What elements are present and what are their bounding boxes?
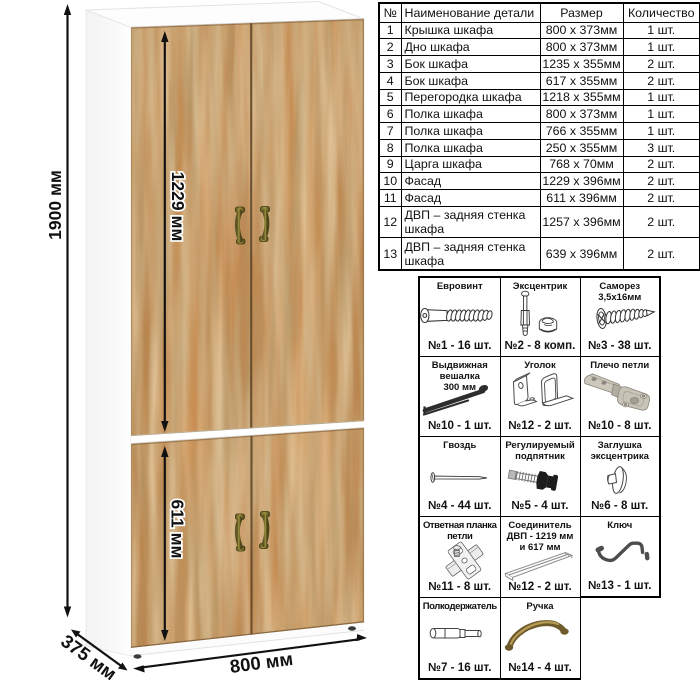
svg-text:800 мм: 800 мм (229, 648, 295, 677)
svg-text:1229 мм: 1229 мм (168, 172, 188, 242)
svg-text:611 мм: 611 мм (167, 500, 187, 559)
svg-text:1900 мм: 1900 мм (45, 170, 65, 240)
